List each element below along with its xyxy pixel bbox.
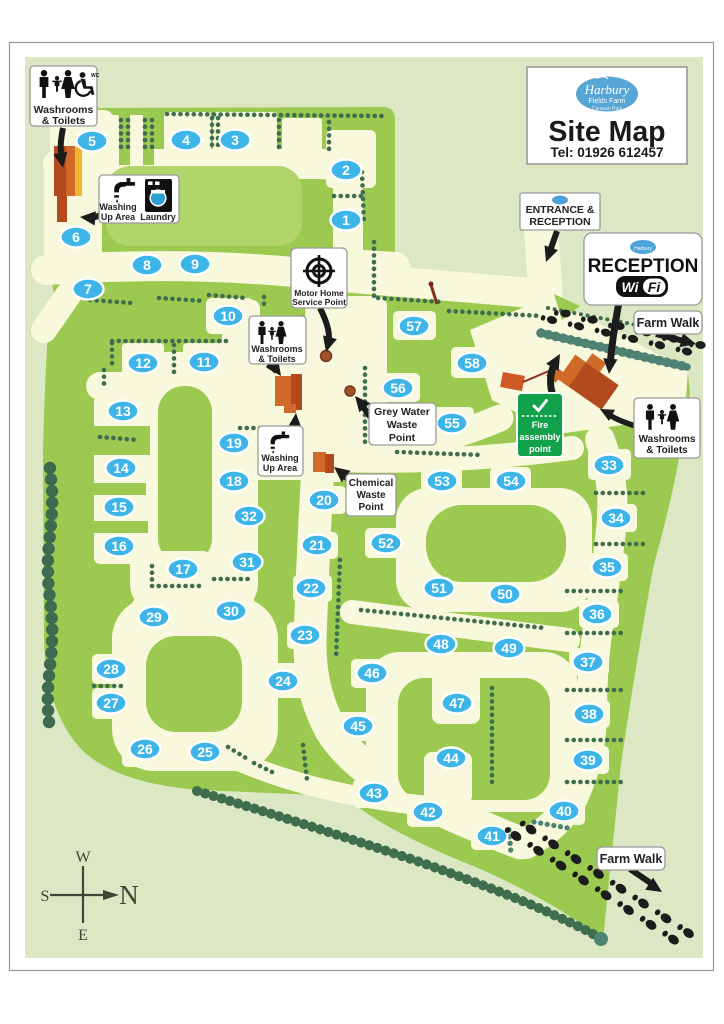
svg-text:Waste: Waste xyxy=(387,419,418,431)
svg-text:Caravan Park: Caravan Park xyxy=(592,106,623,112)
svg-text:29: 29 xyxy=(146,609,162,625)
svg-text:27: 27 xyxy=(103,695,119,711)
svg-text:N: N xyxy=(119,880,139,910)
svg-text:Fi: Fi xyxy=(648,279,662,295)
svg-text:48: 48 xyxy=(433,636,449,652)
svg-text:point: point xyxy=(529,444,551,454)
svg-text:34: 34 xyxy=(608,510,624,526)
svg-text:41: 41 xyxy=(484,828,500,844)
svg-text:43: 43 xyxy=(366,785,382,801)
svg-text:23: 23 xyxy=(297,627,313,643)
svg-text:WC: WC xyxy=(91,73,100,79)
svg-text:W: W xyxy=(75,849,91,866)
svg-text:& Toilets: & Toilets xyxy=(646,445,688,456)
svg-text:57: 57 xyxy=(406,318,422,334)
svg-text:Grey Water: Grey Water xyxy=(374,406,430,418)
svg-text:56: 56 xyxy=(390,380,406,396)
svg-text:55: 55 xyxy=(444,415,460,431)
svg-text:53: 53 xyxy=(434,473,450,489)
svg-text:52: 52 xyxy=(378,535,394,551)
svg-text:Up Area: Up Area xyxy=(263,463,298,473)
svg-text:Tel: 01926 612457: Tel: 01926 612457 xyxy=(550,145,663,160)
svg-text:Harbury: Harbury xyxy=(584,82,630,97)
svg-text:30: 30 xyxy=(223,603,239,619)
svg-text:RECEPTION: RECEPTION xyxy=(529,216,590,228)
svg-text:ENTRANCE &: ENTRANCE & xyxy=(526,204,595,216)
svg-text:Harbury: Harbury xyxy=(634,246,652,252)
svg-text:16: 16 xyxy=(111,538,127,554)
svg-text:RECEPTION: RECEPTION xyxy=(588,256,699,277)
svg-text:28: 28 xyxy=(103,661,119,677)
svg-text:38: 38 xyxy=(581,706,597,722)
svg-text:11: 11 xyxy=(197,354,212,370)
svg-text:Farm Walk: Farm Walk xyxy=(600,852,663,866)
svg-text:12: 12 xyxy=(135,355,151,371)
svg-text:46: 46 xyxy=(364,665,380,681)
svg-text:Washing: Washing xyxy=(261,453,298,463)
svg-text:2: 2 xyxy=(342,162,350,178)
svg-text:35: 35 xyxy=(599,559,615,575)
svg-text:13: 13 xyxy=(115,403,131,419)
svg-text:44: 44 xyxy=(443,750,459,766)
svg-text:Chemical: Chemical xyxy=(349,478,394,489)
svg-text:32: 32 xyxy=(241,508,257,524)
svg-text:8: 8 xyxy=(143,257,151,273)
svg-text:39: 39 xyxy=(580,752,596,768)
svg-text:5: 5 xyxy=(88,133,96,149)
svg-text:42: 42 xyxy=(420,804,436,820)
svg-text:10: 10 xyxy=(220,308,236,324)
svg-text:6: 6 xyxy=(72,229,80,245)
svg-text:49: 49 xyxy=(501,640,517,656)
svg-text:37: 37 xyxy=(580,654,596,670)
svg-text:25: 25 xyxy=(197,744,213,760)
svg-text:& Toilets: & Toilets xyxy=(258,354,295,364)
svg-text:E: E xyxy=(78,927,88,944)
svg-text:Washing: Washing xyxy=(99,202,136,212)
svg-text:18: 18 xyxy=(226,473,242,489)
svg-text:31: 31 xyxy=(239,554,255,570)
svg-text:22: 22 xyxy=(303,580,319,596)
svg-text:Fire: Fire xyxy=(532,420,549,430)
svg-text:& Toilets: & Toilets xyxy=(42,115,86,127)
svg-text:Washrooms: Washrooms xyxy=(251,344,302,354)
svg-text:58: 58 xyxy=(464,355,480,371)
svg-text:50: 50 xyxy=(497,586,513,602)
svg-text:15: 15 xyxy=(111,499,127,515)
svg-text:Waste: Waste xyxy=(356,490,386,501)
svg-text:45: 45 xyxy=(350,718,366,734)
svg-text:S: S xyxy=(41,888,50,905)
svg-text:Up Area: Up Area xyxy=(101,212,136,222)
svg-text:Service Point: Service Point xyxy=(292,297,346,307)
svg-text:Fields Farm: Fields Farm xyxy=(589,98,626,105)
svg-text:54: 54 xyxy=(503,473,519,489)
svg-text:40: 40 xyxy=(556,803,572,819)
svg-text:3: 3 xyxy=(231,132,239,148)
svg-text:9: 9 xyxy=(191,256,199,272)
svg-text:7: 7 xyxy=(84,281,92,297)
svg-text:Farm Walk: Farm Walk xyxy=(637,316,700,330)
svg-text:4: 4 xyxy=(182,132,190,148)
svg-text:21: 21 xyxy=(309,537,325,553)
svg-text:Wi: Wi xyxy=(622,279,640,295)
svg-text:1: 1 xyxy=(342,212,350,228)
svg-text:19: 19 xyxy=(226,435,242,451)
svg-text:17: 17 xyxy=(175,561,191,577)
svg-text:Point: Point xyxy=(359,502,385,513)
svg-text:Point: Point xyxy=(389,432,416,444)
svg-text:assembly: assembly xyxy=(519,432,560,442)
svg-text:20: 20 xyxy=(316,492,332,508)
svg-text:Washrooms: Washrooms xyxy=(639,434,696,445)
svg-text:51: 51 xyxy=(431,580,447,596)
svg-text:26: 26 xyxy=(137,741,153,757)
svg-text:Site Map: Site Map xyxy=(548,116,665,148)
svg-text:33: 33 xyxy=(601,457,617,473)
svg-text:Laundry: Laundry xyxy=(140,212,176,222)
svg-text:36: 36 xyxy=(589,606,605,622)
svg-text:47: 47 xyxy=(449,695,465,711)
svg-text:14: 14 xyxy=(113,460,129,476)
svg-text:24: 24 xyxy=(275,673,291,689)
